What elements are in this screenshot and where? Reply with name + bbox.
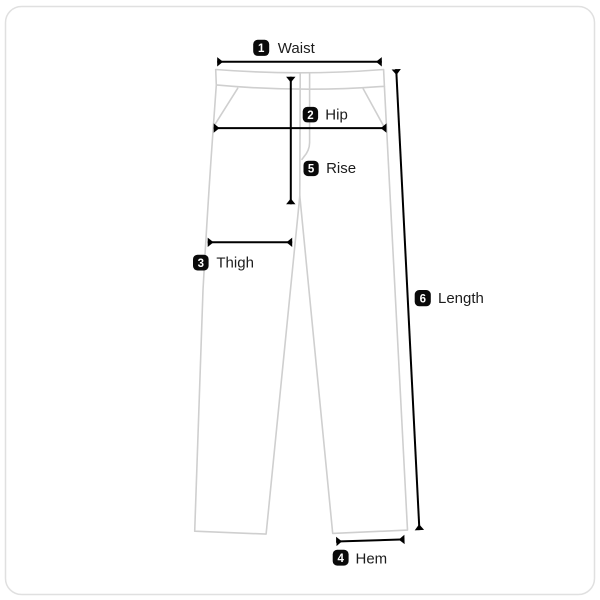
svg-text:5: 5 <box>308 164 315 176</box>
svg-text:1: 1 <box>258 43 265 55</box>
svg-text:6: 6 <box>420 293 426 305</box>
svg-text:2: 2 <box>307 110 313 122</box>
svg-text:Length: Length <box>438 290 484 307</box>
svg-text:4: 4 <box>337 553 344 565</box>
svg-text:Hip: Hip <box>325 106 348 123</box>
svg-text:Rise: Rise <box>326 160 356 177</box>
svg-text:Waist: Waist <box>278 40 316 57</box>
svg-text:Hem: Hem <box>356 550 388 567</box>
svg-text:3: 3 <box>198 258 204 270</box>
svg-text:Thigh: Thigh <box>216 255 254 272</box>
